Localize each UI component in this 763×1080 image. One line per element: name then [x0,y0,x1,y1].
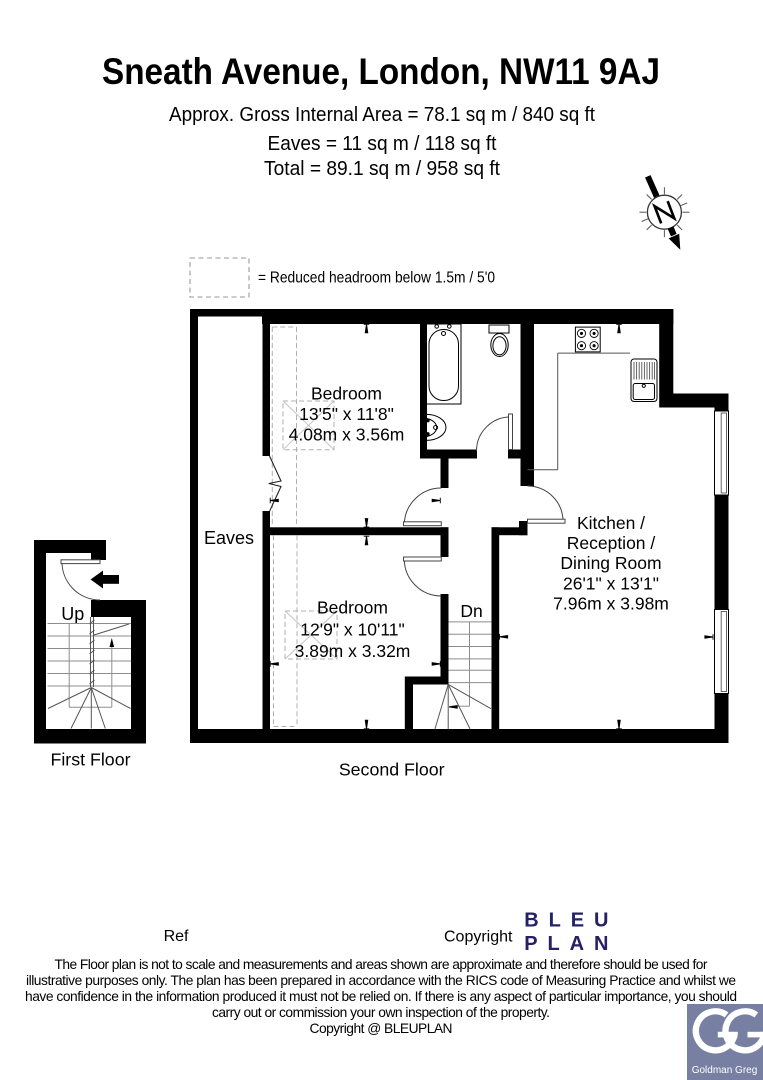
svg-text:Kitchen /: Kitchen / [577,513,645,533]
svg-text:3.89m x 3.32m: 3.89m x 3.32m [295,641,411,661]
svg-text:The Floor plan is not to scale: The Floor plan is not to scale and measu… [55,957,708,972]
svg-text:illustrative purposes only. Th: illustrative purposes only. The plan has… [26,973,736,988]
svg-text:Reception /: Reception / [567,533,656,553]
svg-text:Bedroom: Bedroom [311,383,382,403]
svg-text:Approx. Gross Internal Area =: Approx. Gross Internal Area = 78.1 sq m … [169,104,595,126]
svg-text:7.96m x 3.98m: 7.96m x 3.98m [553,594,669,614]
svg-text:= Reduced headroom below 1.5m: = Reduced headroom below 1.5m / 5'0 [258,270,495,287]
svg-text:4.08m x 3.56m: 4.08m x 3.56m [289,425,405,445]
svg-text:Eaves: Eaves [204,528,254,548]
svg-text:26'1" x 13'1": 26'1" x 13'1" [563,573,659,593]
svg-text:Eaves = 11 sq m / 118 sq ft: Eaves = 11 sq m / 118 sq ft [268,133,497,155]
svg-text:Up: Up [61,604,84,624]
svg-text:Ref: Ref [164,928,189,945]
svg-text:12'9" x 10'11": 12'9" x 10'11" [300,619,404,639]
svg-text:Copyright: Copyright [444,929,513,946]
svg-text:Goldman Greg: Goldman Greg [692,1065,758,1076]
svg-text:13'5" x 11'8": 13'5" x 11'8" [299,404,394,424]
svg-text:PLAN: PLAN [524,933,618,955]
svg-text:Bedroom: Bedroom [317,598,388,618]
svg-text:carry out or commission your o: carry out or commission your own inspect… [212,1005,550,1020]
svg-text:BLEU: BLEU [524,910,618,932]
svg-text:Sneath Avenue, London, NW11 9A: Sneath Avenue, London, NW11 9AJ [102,51,660,92]
svg-text:First Floor: First Floor [50,749,130,769]
svg-text:Total = 89.1 sq m / 958 sq ft: Total = 89.1 sq m / 958 sq ft [264,158,500,180]
svg-text:have confidence in the informa: have confidence in the information produ… [25,989,737,1004]
svg-text:Copyright @ BLEUPLAN: Copyright @ BLEUPLAN [310,1021,453,1036]
svg-text:Second Floor: Second Floor [339,759,445,779]
svg-text:Dining Room: Dining Room [560,553,661,573]
svg-text:Dn: Dn [460,601,482,621]
